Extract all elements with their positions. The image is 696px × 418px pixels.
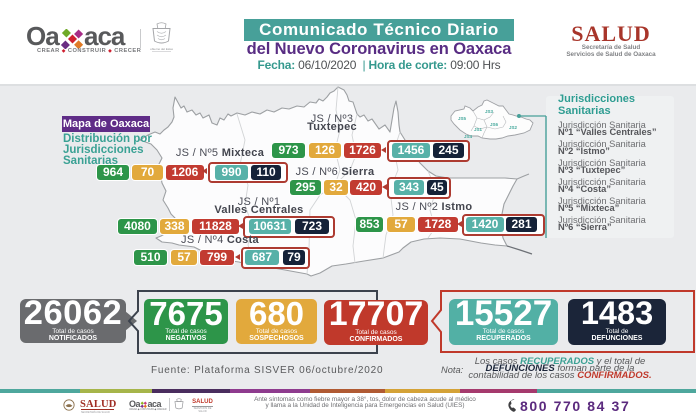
svg-text:Gobierno del Estado: Gobierno del Estado: [150, 47, 173, 51]
